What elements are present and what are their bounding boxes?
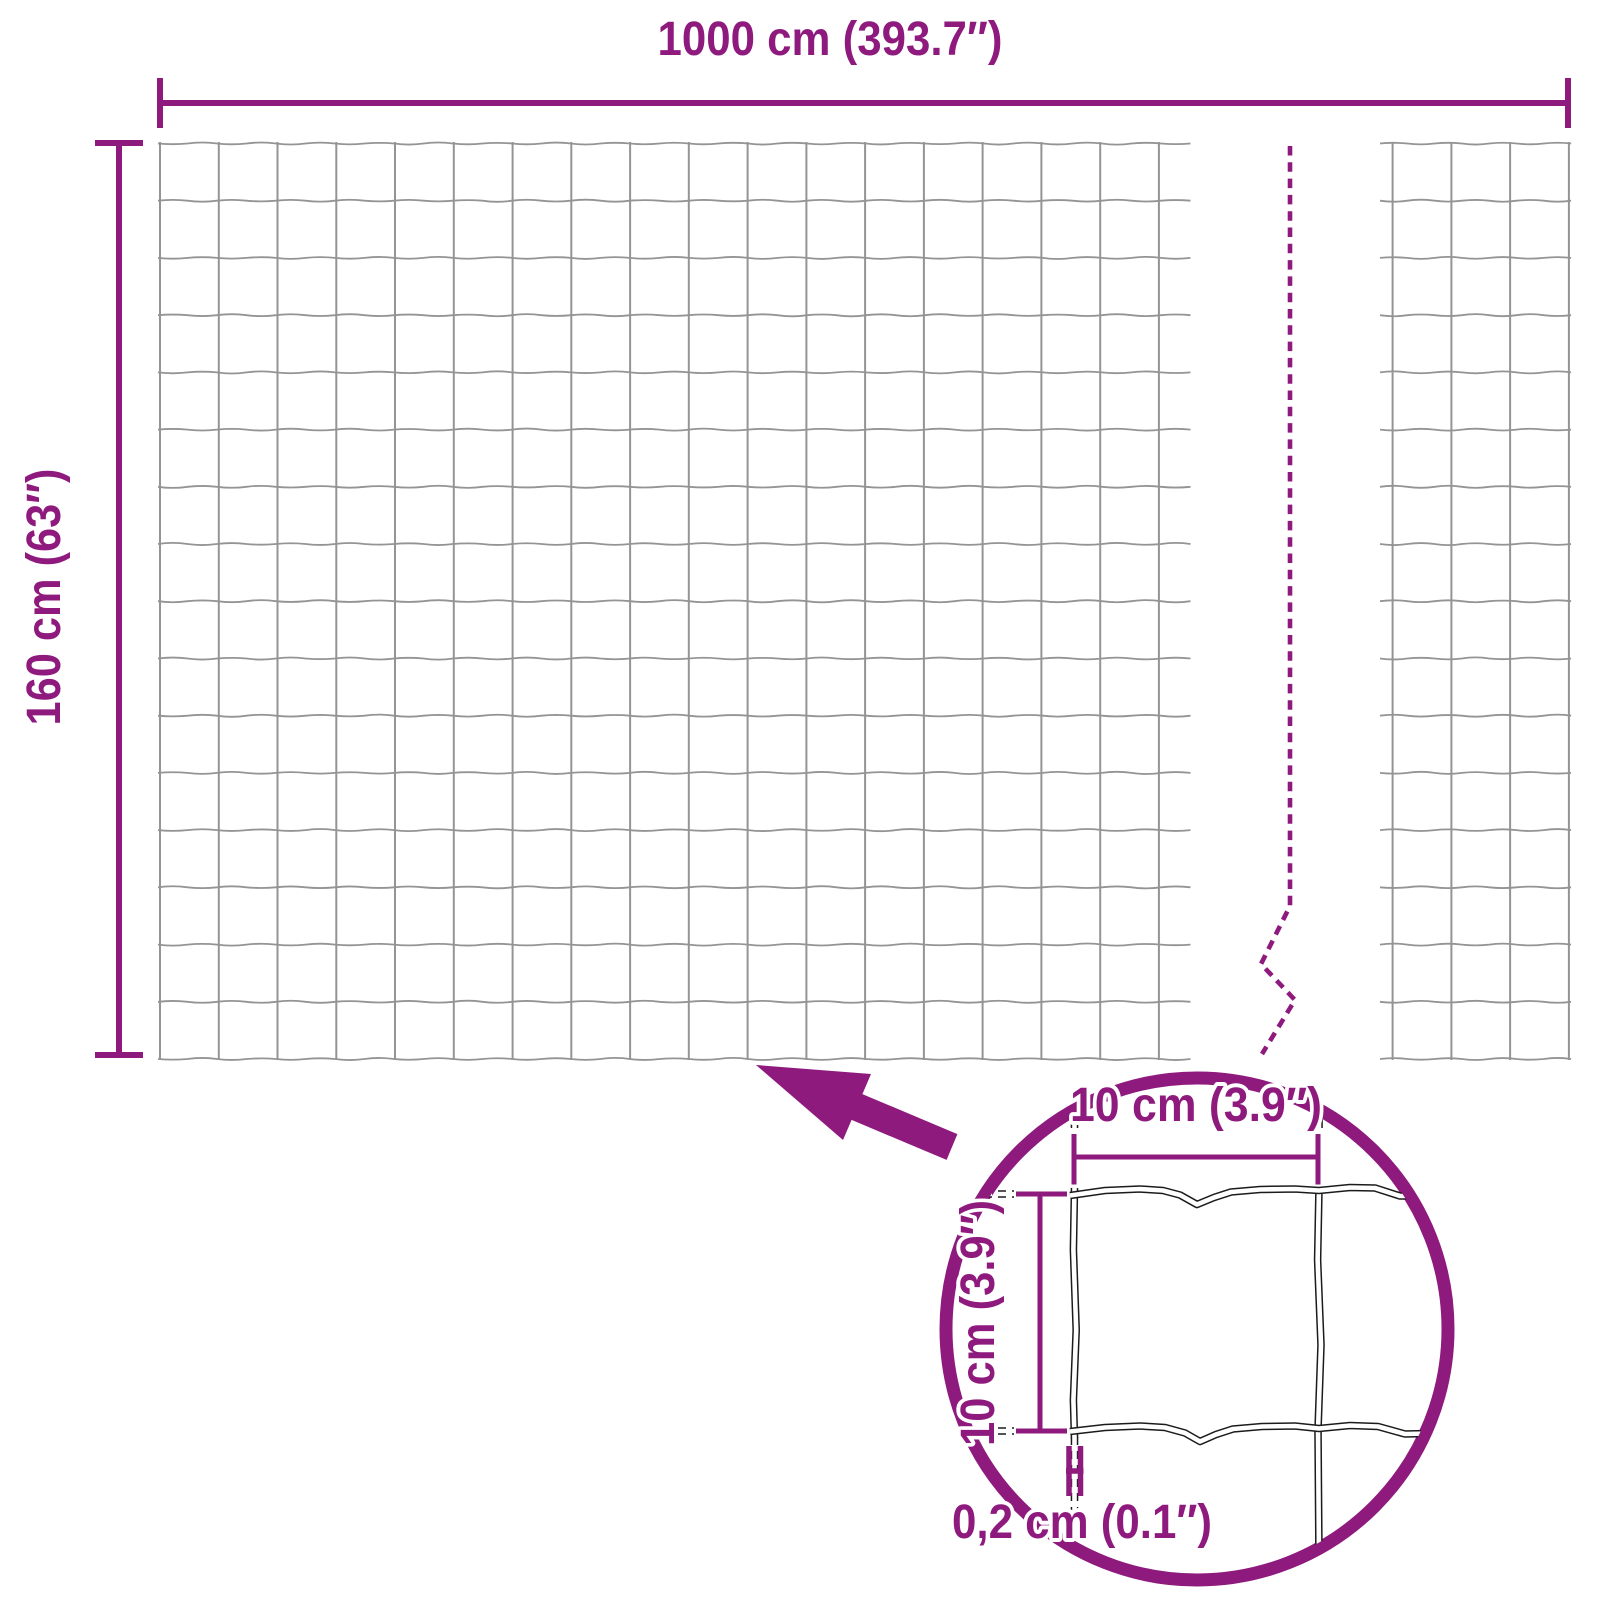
svg-text:1000 cm (393.7″): 1000 cm (393.7″): [658, 13, 1003, 66]
svg-text:0,2 cm (0.1″): 0,2 cm (0.1″): [952, 1496, 1212, 1549]
svg-text:10 cm (3.9″): 10 cm (3.9″): [952, 1200, 1005, 1446]
svg-text:10 cm (3.9″): 10 cm (3.9″): [1070, 1079, 1322, 1132]
svg-text:160 cm (63″): 160 cm (63″): [18, 469, 71, 726]
